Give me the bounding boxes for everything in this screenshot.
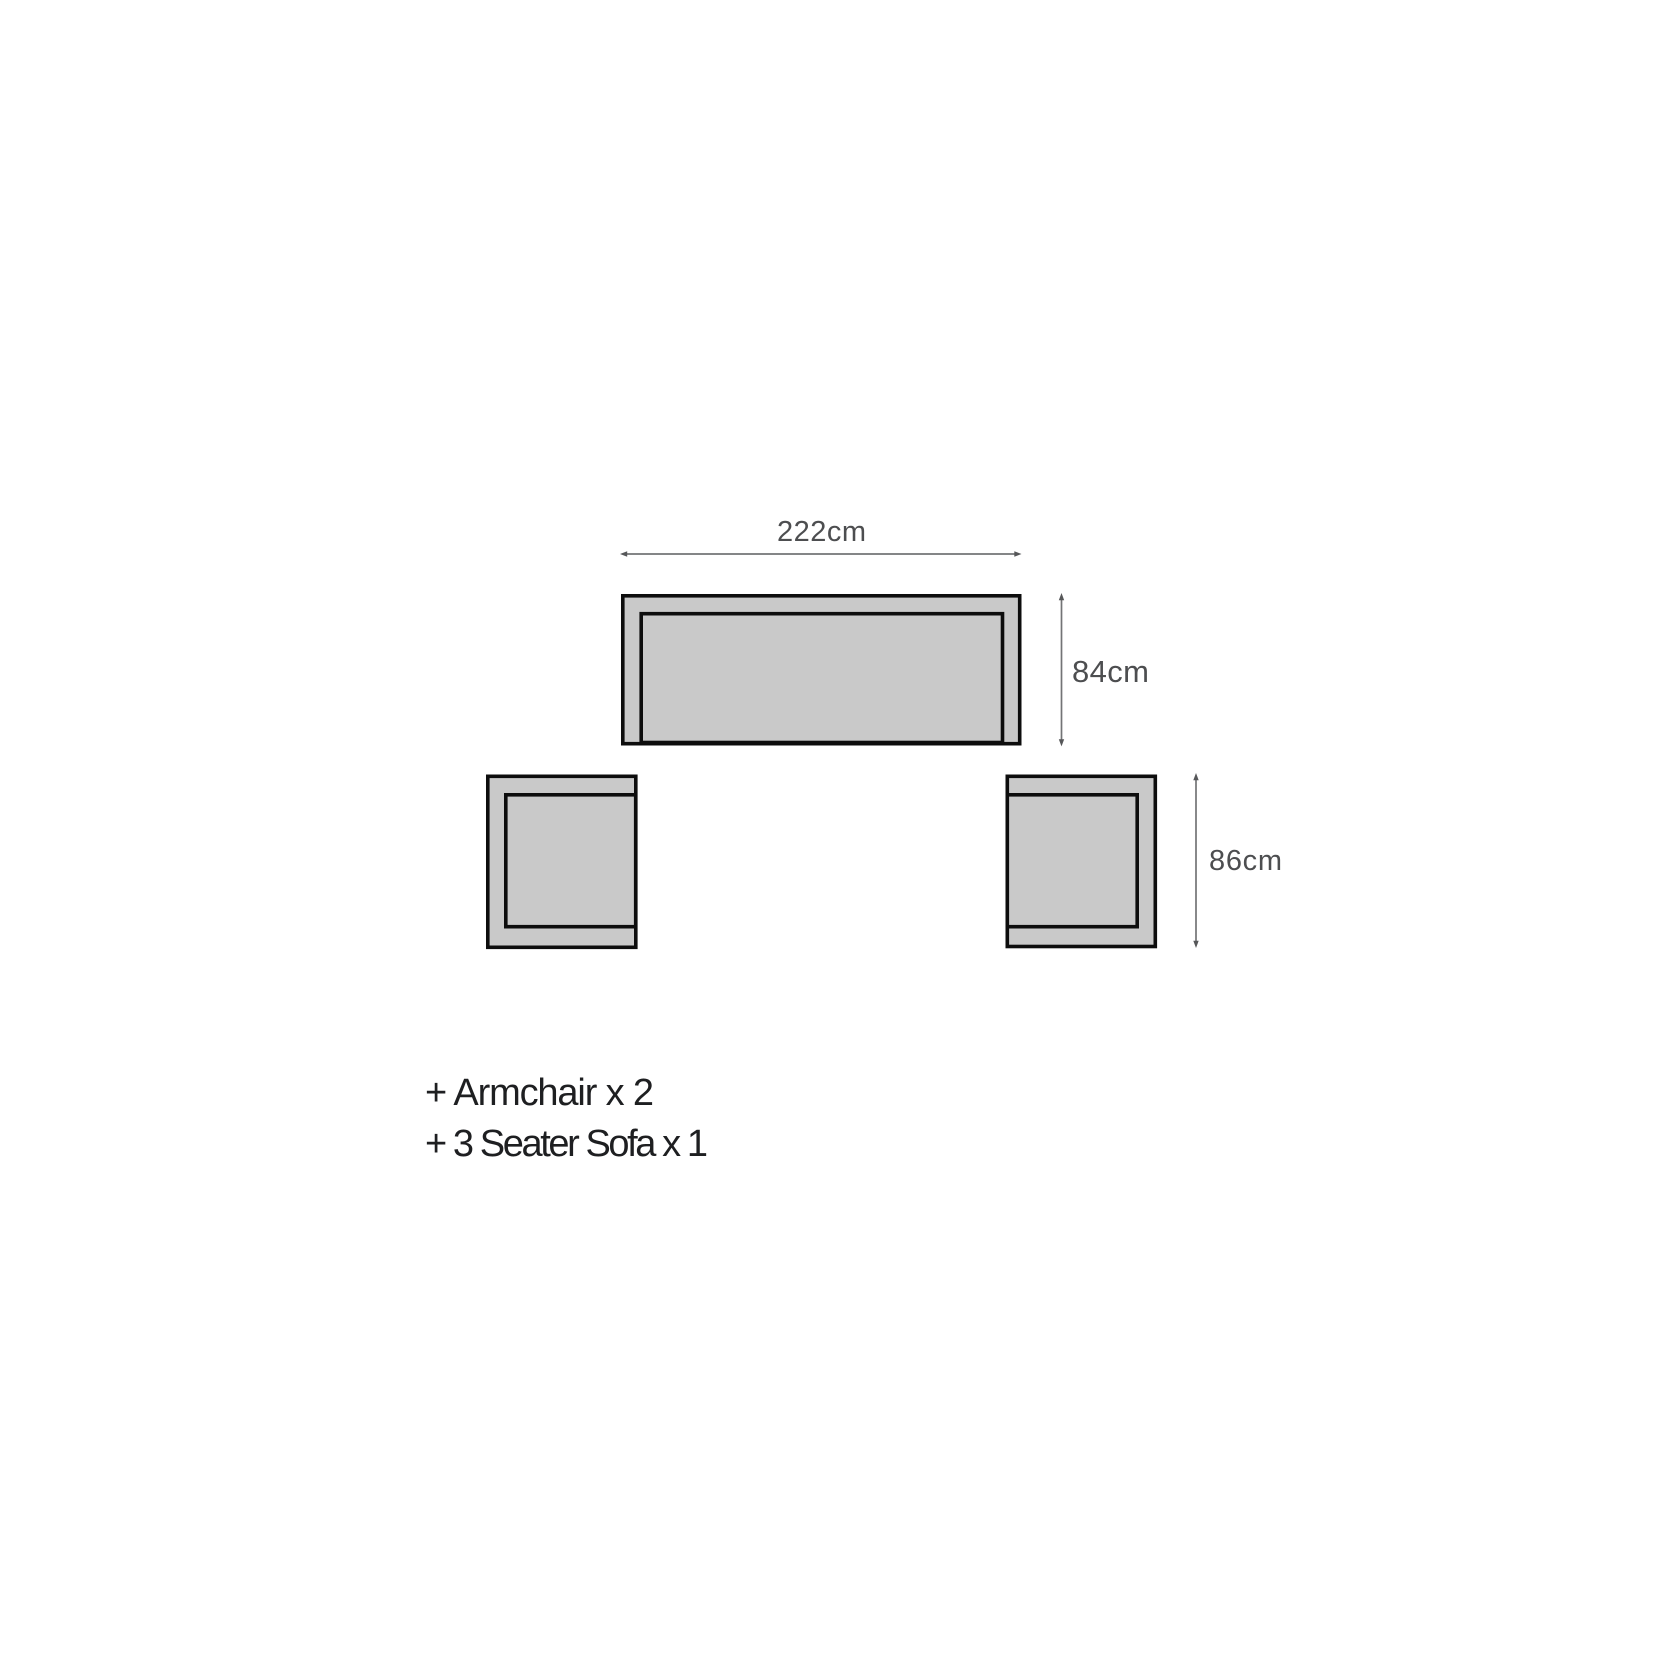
svg-text:86cm: 86cm — [1209, 845, 1282, 877]
svg-text:84cm: 84cm — [1072, 654, 1149, 689]
svg-text:222cm: 222cm — [777, 516, 866, 548]
svg-text:+ Armchair x 2: + Armchair x 2 — [425, 1072, 654, 1114]
svg-text:+ 3 Seater Sofa x 1: + 3 Seater Sofa x 1 — [425, 1123, 708, 1165]
